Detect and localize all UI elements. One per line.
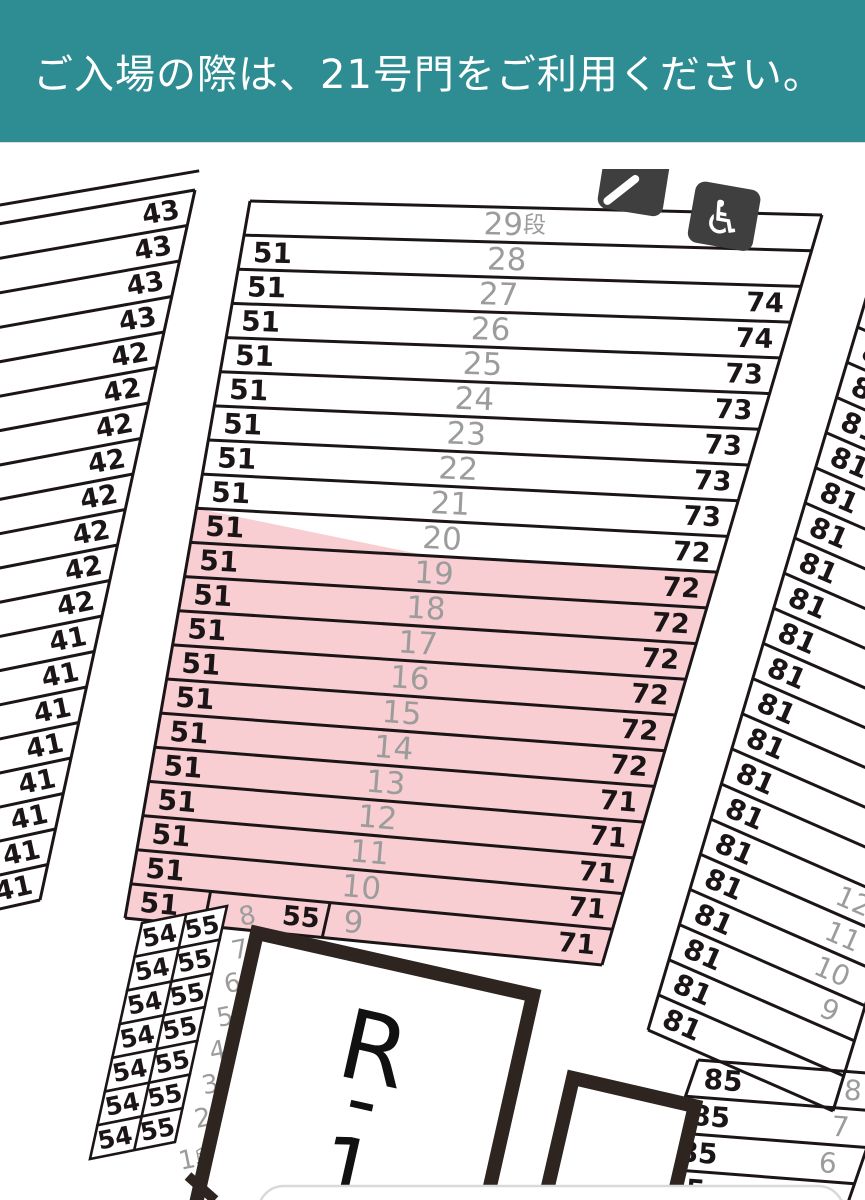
seat-number-label: 42 (109, 337, 152, 374)
seat-number-label: 9 (342, 904, 365, 942)
seat-number-label: 51 (168, 715, 209, 751)
seat-number-label: 72 (620, 714, 660, 748)
seat-number-label: 22 (438, 450, 479, 488)
seat-number-label: 72 (662, 572, 701, 605)
building-2 (533, 1078, 695, 1200)
seat-number-label: 25 (462, 346, 503, 383)
seat-number-label: 15 (381, 694, 423, 733)
seat-number-label: 51 (199, 544, 240, 579)
seat-number-label: 26 (470, 311, 511, 348)
seat-number-label: 71 (588, 820, 628, 854)
seat-number-label: 6 (818, 1146, 838, 1180)
bottom-sheet-overlay[interactable] (258, 1186, 844, 1200)
seat-number-label: 12 (356, 798, 398, 837)
seat-map[interactable]: 4343434342424242424242424141414141414141… (0, 0, 865, 1200)
seat-number-label: 28 (486, 241, 526, 278)
seat-number-label: 74 (746, 287, 785, 319)
seat-number-label: 73 (683, 501, 722, 534)
seat-number-label: 51 (229, 373, 269, 408)
seat-number-label: 51 (235, 339, 275, 373)
entrance-notice-banner: ご入場の際は、21号門をご利用ください。 (0, 0, 865, 142)
seat-number-label: 18 (405, 590, 447, 628)
seat-number-label: 7 (830, 1110, 850, 1144)
seat-number-label: 43 (116, 301, 158, 338)
seat-number-label: 73 (704, 429, 743, 462)
seat-number-label: 21 (430, 485, 471, 523)
wheelchair-icon: ♿ (686, 180, 762, 253)
entrance-notice-text: ご入場の際は、21号門をご利用ください。 (0, 42, 824, 100)
seat-number-label: 71 (567, 891, 607, 925)
seat-number-label: 72 (641, 643, 681, 676)
seat-number-label: 51 (180, 646, 221, 682)
seat-number-label: 27 (478, 276, 519, 313)
seat-number-label: 19 (413, 555, 454, 593)
seat-number-label: 51 (241, 304, 281, 338)
seat-number-label: 71 (556, 927, 596, 961)
seat-number-label: 72 (672, 536, 711, 569)
seat-number-label: 51 (247, 270, 287, 304)
seat-number-label: 72 (651, 607, 690, 640)
seat-number-label: 13 (364, 764, 406, 803)
seat-number-label: 51 (223, 407, 263, 442)
seat-number-label: 51 (156, 783, 198, 819)
seat-number-label: 72 (630, 678, 670, 712)
seat-number-label: 51 (144, 851, 186, 887)
seat-number-label: 55 (281, 900, 321, 934)
seat-number-label: 10 (340, 868, 383, 907)
seat-number-label: 24 (454, 381, 495, 419)
seat-number-label: 72 (609, 749, 649, 783)
seat-number-label: 74 (735, 323, 774, 355)
seat-number-label: 29段 (483, 206, 546, 244)
seat-number-label: 43 (124, 266, 166, 303)
seat-number-label: 71 (577, 856, 617, 890)
seat-number-label: 23 (446, 415, 487, 453)
seat-number-label: 43 (132, 230, 174, 267)
seat-number-label: 8 (843, 1073, 863, 1107)
seat-number-label: 85 (702, 1063, 743, 1099)
seat-number-label: 51 (253, 236, 293, 270)
building-r1: R-1 (191, 933, 533, 1200)
seat-number-label: 16 (389, 659, 431, 698)
seat-number-label: 14 (373, 729, 415, 768)
seat-number-label: 11 (348, 833, 390, 872)
seat-number-label: 51 (217, 441, 258, 476)
seat-number-label: 73 (693, 465, 732, 498)
seat-number-label: 51 (205, 510, 246, 545)
seat-number-label: 73 (714, 394, 753, 427)
seat-number-label: 51 (193, 578, 234, 613)
seat-number-label: 51 (162, 749, 203, 785)
seat-number-label: 71 (598, 785, 638, 819)
seat-number-label: 51 (150, 817, 192, 853)
seat-number-label: 9 (815, 991, 845, 1028)
seat-number-label: 51 (186, 612, 227, 647)
seat-number-label: 17 (397, 624, 439, 662)
seat-number-label: 73 (725, 358, 764, 390)
seat-number-label: 51 (211, 475, 252, 510)
seat-number-label: 20 (421, 520, 462, 558)
seat-number-label: 51 (174, 680, 215, 716)
seat-number-label: 43 (140, 195, 182, 232)
